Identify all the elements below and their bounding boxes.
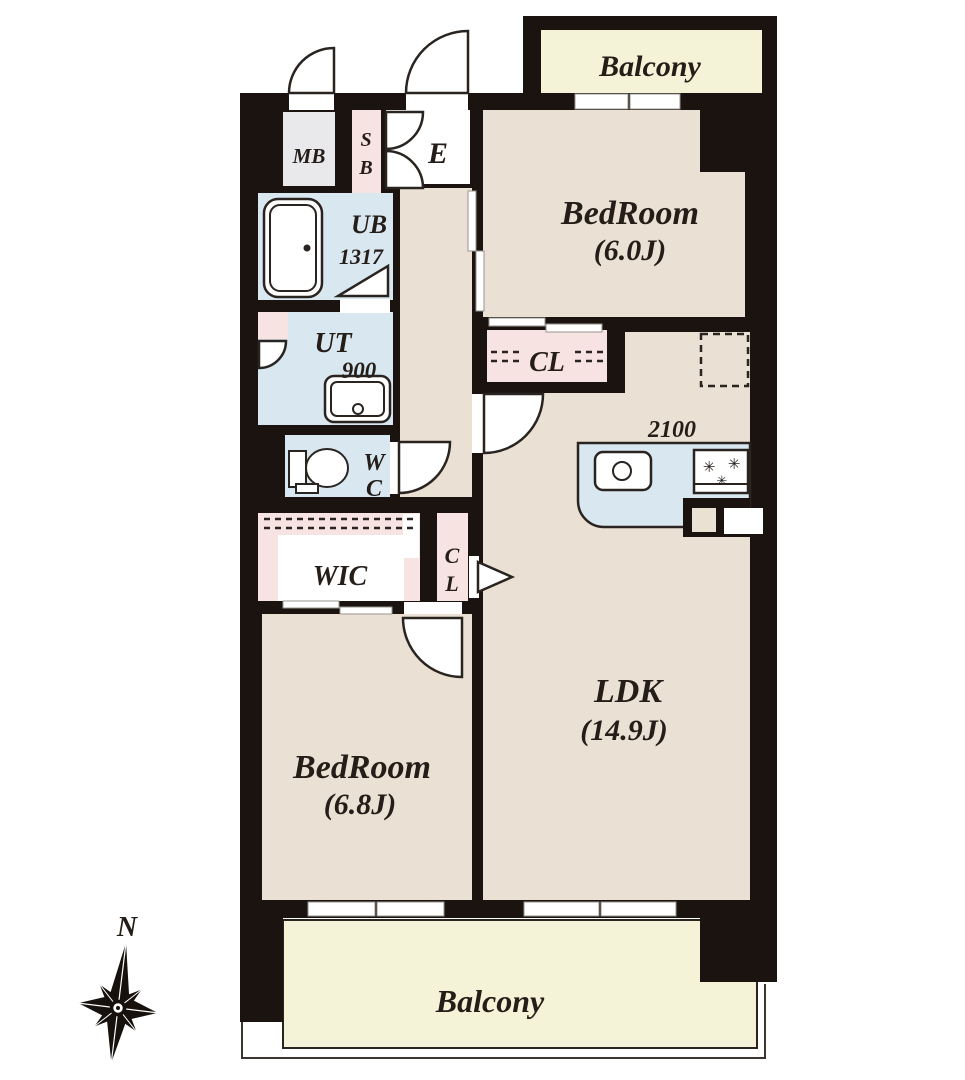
toilet-tank-icon <box>289 451 306 487</box>
unit-bath-label: UB <box>351 210 387 239</box>
kitchen-width-label: 2100 <box>647 417 696 443</box>
bedroom-1-closet-door <box>546 324 602 332</box>
wic-sliding-door <box>283 601 339 608</box>
ldk-size: (14.9J) <box>580 714 667 747</box>
compass: N <box>69 912 168 1068</box>
meter-box-door <box>289 48 334 93</box>
toilet-base-icon <box>296 484 318 493</box>
floorplan-drawing: Balcony Balcony <box>0 0 965 1080</box>
walk-in-closet-label: WIC <box>313 561 368 592</box>
balcony-top: Balcony <box>523 16 777 95</box>
meter-box-label: MB <box>292 144 326 168</box>
ldk-opening <box>472 394 483 453</box>
unit-bath-size: 1317 <box>339 244 384 269</box>
entrance-door <box>406 31 468 93</box>
utility-size: 900 <box>342 358 377 383</box>
ldk-window <box>524 902 599 916</box>
compass-rose-icon <box>69 937 168 1067</box>
meter-box-opening <box>289 94 334 110</box>
hall-closet-label-1: C <box>445 543 460 568</box>
toilet-label-1: W <box>363 450 386 476</box>
bedroom-1-window <box>630 94 680 109</box>
burner-icon: ✳ <box>717 474 728 489</box>
balcony-bottom-right-pier <box>700 900 777 982</box>
hall-closet-label-2: L <box>444 571 458 596</box>
burner-icon: ✳ <box>728 455 741 473</box>
wic-sliding-door <box>340 607 392 614</box>
floorplan-page: Balcony Balcony <box>0 0 965 1080</box>
washer-space <box>258 312 288 339</box>
pipe-space-inner <box>692 508 716 532</box>
kitchen-faucet-icon <box>613 462 631 480</box>
refrigerator-space <box>701 334 748 386</box>
toilet-bowl-icon <box>306 449 348 487</box>
unit-bath-opening <box>340 299 390 313</box>
bedroom-2-label: BedRoom <box>292 749 431 786</box>
bedroom-2-window <box>377 902 444 916</box>
ldk-label: LDK <box>593 673 664 710</box>
shoe-box-label-1: S <box>360 129 371 151</box>
bedroom-1-sliding-door <box>468 191 476 251</box>
entrance-label: E <box>427 137 448 170</box>
bedroom-2-opening <box>404 602 462 614</box>
pipe-space-duct <box>724 508 763 534</box>
balcony-bottom-left-pier <box>240 900 283 1022</box>
burner-icon: ✳ <box>703 458 716 476</box>
bedroom-1-sliding-door <box>476 251 484 311</box>
bedroom-1-closet-label: CL <box>529 347 565 378</box>
utility-label: UT <box>314 328 353 359</box>
ldk-window <box>601 902 676 916</box>
balcony-bottom: Balcony <box>240 900 777 1058</box>
bedroom-1-closet-door <box>489 318 545 326</box>
toilet-label-2: C <box>366 476 383 502</box>
bedroom-1-size: (6.0J) <box>594 234 666 267</box>
bedroom-1-label: BedRoom <box>560 195 699 232</box>
washbasin-drain-icon <box>353 404 363 414</box>
bedroom-1-wall-notch <box>700 110 777 172</box>
bathtub-icon <box>264 199 322 297</box>
balcony-bottom-label: Balcony <box>435 983 545 1019</box>
bedroom-2-size: (6.8J) <box>324 788 396 821</box>
bedroom-2-window <box>308 902 375 916</box>
balcony-top-label: Balcony <box>598 50 701 83</box>
entrance-opening <box>406 94 468 111</box>
bathtub-drain-icon <box>304 245 311 252</box>
shoe-box-label-2: B <box>358 157 372 179</box>
compass-north-label: N <box>116 912 139 943</box>
bedroom-1-window <box>575 94 628 109</box>
shoe-box-room <box>352 110 381 194</box>
wic-side-opening <box>403 514 419 558</box>
